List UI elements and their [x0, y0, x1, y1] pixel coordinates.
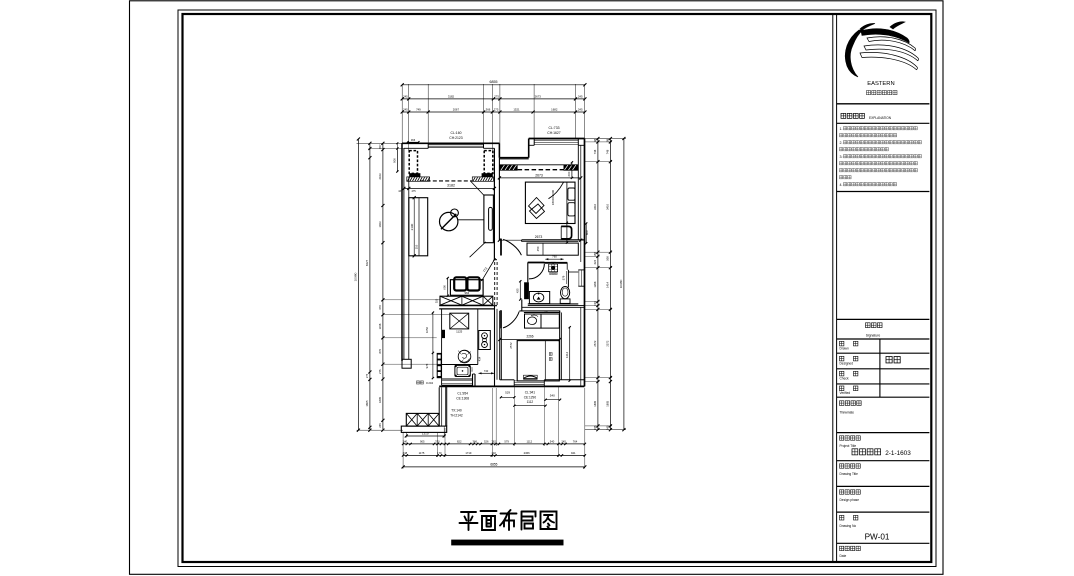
- svg-text:748: 748: [593, 149, 597, 154]
- svg-text:1125: 1125: [456, 330, 463, 334]
- svg-text:529: 529: [505, 390, 510, 394]
- svg-text:1112: 1112: [527, 439, 533, 443]
- svg-text:275: 275: [494, 107, 499, 111]
- svg-text:1805: 1805: [365, 400, 369, 407]
- svg-text:CL:954: CL:954: [457, 392, 468, 396]
- svg-text:749: 749: [416, 107, 421, 111]
- svg-text:Designed: Designed: [840, 361, 854, 365]
- svg-text:1310: 1310: [422, 431, 429, 435]
- svg-text:1719: 1719: [465, 451, 471, 455]
- svg-text:457: 457: [378, 144, 382, 149]
- svg-text:2673: 2673: [535, 235, 543, 239]
- svg-text:510: 510: [415, 244, 419, 249]
- svg-text:132: 132: [491, 451, 496, 455]
- svg-text:Check: Check: [840, 376, 849, 380]
- svg-text:x41: x41: [545, 311, 550, 314]
- svg-text:1112: 1112: [527, 400, 534, 404]
- svg-text:3:: 3:: [840, 155, 843, 159]
- svg-text:10980: 10980: [354, 272, 358, 281]
- svg-text:1682: 1682: [551, 107, 558, 111]
- svg-text:Date: Date: [840, 554, 847, 558]
- svg-text:98: 98: [593, 138, 597, 141]
- svg-text:98: 98: [606, 138, 610, 141]
- svg-text:1656: 1656: [425, 326, 429, 333]
- svg-text:437: 437: [398, 190, 403, 193]
- svg-text:EXPLANATION: EXPLANATION: [869, 116, 892, 120]
- svg-text:740: 740: [484, 369, 489, 373]
- svg-text:2190: 2190: [410, 223, 414, 230]
- svg-text:366: 366: [486, 107, 491, 111]
- svg-text:CL:733: CL:733: [549, 126, 560, 130]
- svg-text:2067: 2067: [453, 107, 460, 111]
- svg-text:158: 158: [593, 252, 597, 257]
- svg-text:245: 245: [578, 94, 583, 98]
- svg-text:905: 905: [420, 439, 425, 443]
- svg-text:966: 966: [464, 291, 469, 295]
- svg-text:245: 245: [561, 439, 566, 443]
- svg-text:3410: 3410: [593, 204, 597, 210]
- svg-text:CL:941: CL:941: [525, 391, 536, 395]
- svg-text:275: 275: [494, 94, 499, 98]
- svg-text:2266: 2266: [526, 335, 533, 339]
- svg-text:366: 366: [473, 439, 478, 443]
- svg-text:1800X2000: 1800X2000: [551, 189, 555, 205]
- svg-text:8427: 8427: [365, 259, 369, 266]
- svg-text:370: 370: [435, 439, 440, 443]
- svg-text:600: 600: [442, 285, 446, 290]
- svg-text:748: 748: [606, 149, 610, 154]
- svg-text:150: 150: [593, 301, 597, 306]
- svg-text:424: 424: [593, 259, 597, 264]
- svg-text:2572: 2572: [606, 340, 610, 346]
- svg-text:170: 170: [437, 451, 442, 455]
- svg-text:1805: 1805: [606, 400, 610, 406]
- svg-text:245: 245: [378, 423, 382, 428]
- svg-text:434: 434: [478, 356, 482, 361]
- svg-text:600: 600: [567, 171, 571, 176]
- svg-text:TH:2142: TH:2142: [450, 413, 463, 417]
- svg-text:579: 579: [504, 439, 509, 443]
- svg-text:2366: 2366: [524, 451, 530, 455]
- svg-text:526: 526: [484, 439, 489, 443]
- svg-text:Design phase: Design phase: [840, 498, 860, 502]
- svg-text:1175: 1175: [419, 451, 425, 455]
- svg-text:1414: 1414: [606, 282, 610, 288]
- svg-text:6855: 6855: [490, 80, 498, 84]
- svg-text:1156: 1156: [378, 323, 382, 329]
- svg-text:366: 366: [411, 138, 416, 142]
- svg-text:3182: 3182: [448, 94, 455, 98]
- svg-text:Project Title: Project Title: [840, 444, 857, 448]
- svg-text:435: 435: [516, 288, 520, 293]
- svg-text:2-1-1603: 2-1-1603: [885, 450, 911, 457]
- svg-text:1268: 1268: [593, 281, 597, 287]
- svg-text:4.: 4.: [840, 183, 843, 187]
- svg-text:1414: 1414: [565, 351, 569, 358]
- svg-text:245: 245: [403, 94, 408, 98]
- svg-text:900: 900: [393, 158, 397, 163]
- svg-text:1521: 1521: [513, 107, 520, 111]
- svg-text:2673: 2673: [535, 173, 543, 177]
- svg-text:762: 762: [491, 439, 496, 443]
- svg-text:2572: 2572: [509, 342, 513, 349]
- svg-text:10980: 10980: [619, 279, 623, 288]
- svg-text:760: 760: [552, 255, 557, 259]
- svg-text:TX:140: TX:140: [451, 408, 462, 412]
- svg-text:Drawing Title: Drawing Title: [840, 472, 859, 476]
- svg-text:470: 470: [378, 305, 382, 310]
- svg-text:2.: 2.: [840, 141, 843, 145]
- svg-text:1403: 1403: [378, 221, 382, 227]
- svg-text:508: 508: [606, 256, 610, 261]
- svg-text:2103: 2103: [378, 173, 382, 179]
- svg-text:450: 450: [536, 246, 540, 251]
- svg-text:475: 475: [412, 190, 417, 193]
- svg-text:800: 800: [585, 230, 589, 235]
- svg-text:CL:160: CL:160: [451, 131, 462, 135]
- svg-text:764: 764: [573, 439, 578, 443]
- svg-text:PW-01: PW-01: [865, 533, 890, 542]
- svg-text:Signature: Signature: [866, 333, 881, 337]
- svg-text:355: 355: [435, 298, 439, 303]
- svg-text:540: 540: [550, 439, 555, 443]
- svg-text:1805: 1805: [378, 397, 382, 403]
- svg-text:CH:1627: CH:1627: [547, 131, 560, 135]
- svg-text:Drawn: Drawn: [840, 346, 849, 350]
- svg-text:2673: 2673: [535, 94, 542, 98]
- svg-text:610: 610: [471, 367, 474, 372]
- svg-text:248: 248: [403, 451, 408, 455]
- svg-text:CE:1290: CE:1290: [524, 396, 537, 400]
- svg-text:941: 941: [571, 451, 576, 455]
- svg-text:870: 870: [378, 348, 382, 353]
- svg-text:275: 275: [366, 373, 369, 378]
- svg-text:0:204: 0:204: [426, 381, 433, 385]
- svg-text:1805: 1805: [593, 400, 597, 406]
- svg-text:CH:2123: CH:2123: [449, 136, 462, 140]
- svg-text:Verified: Verified: [840, 391, 851, 395]
- svg-text:3182: 3182: [447, 184, 455, 188]
- svg-text:245: 245: [403, 107, 408, 111]
- svg-text:540: 540: [550, 393, 555, 397]
- svg-text:245: 245: [578, 107, 583, 111]
- svg-text:978: 978: [425, 363, 429, 368]
- svg-text:CE:1308: CE:1308: [456, 397, 469, 401]
- svg-text:EASTERN: EASTERN: [867, 81, 894, 87]
- svg-text:1.: 1.: [840, 127, 843, 131]
- svg-text:Drawing No: Drawing No: [840, 524, 857, 528]
- svg-text:275: 275: [378, 369, 382, 374]
- svg-text:822: 822: [457, 439, 462, 443]
- svg-text:240: 240: [403, 439, 408, 443]
- svg-text:3410: 3410: [606, 204, 610, 210]
- svg-text:6855: 6855: [490, 462, 497, 466]
- svg-text:579: 579: [562, 275, 566, 280]
- svg-text:2572: 2572: [593, 340, 597, 346]
- svg-text:Tllewmate: Tllewmate: [840, 411, 855, 415]
